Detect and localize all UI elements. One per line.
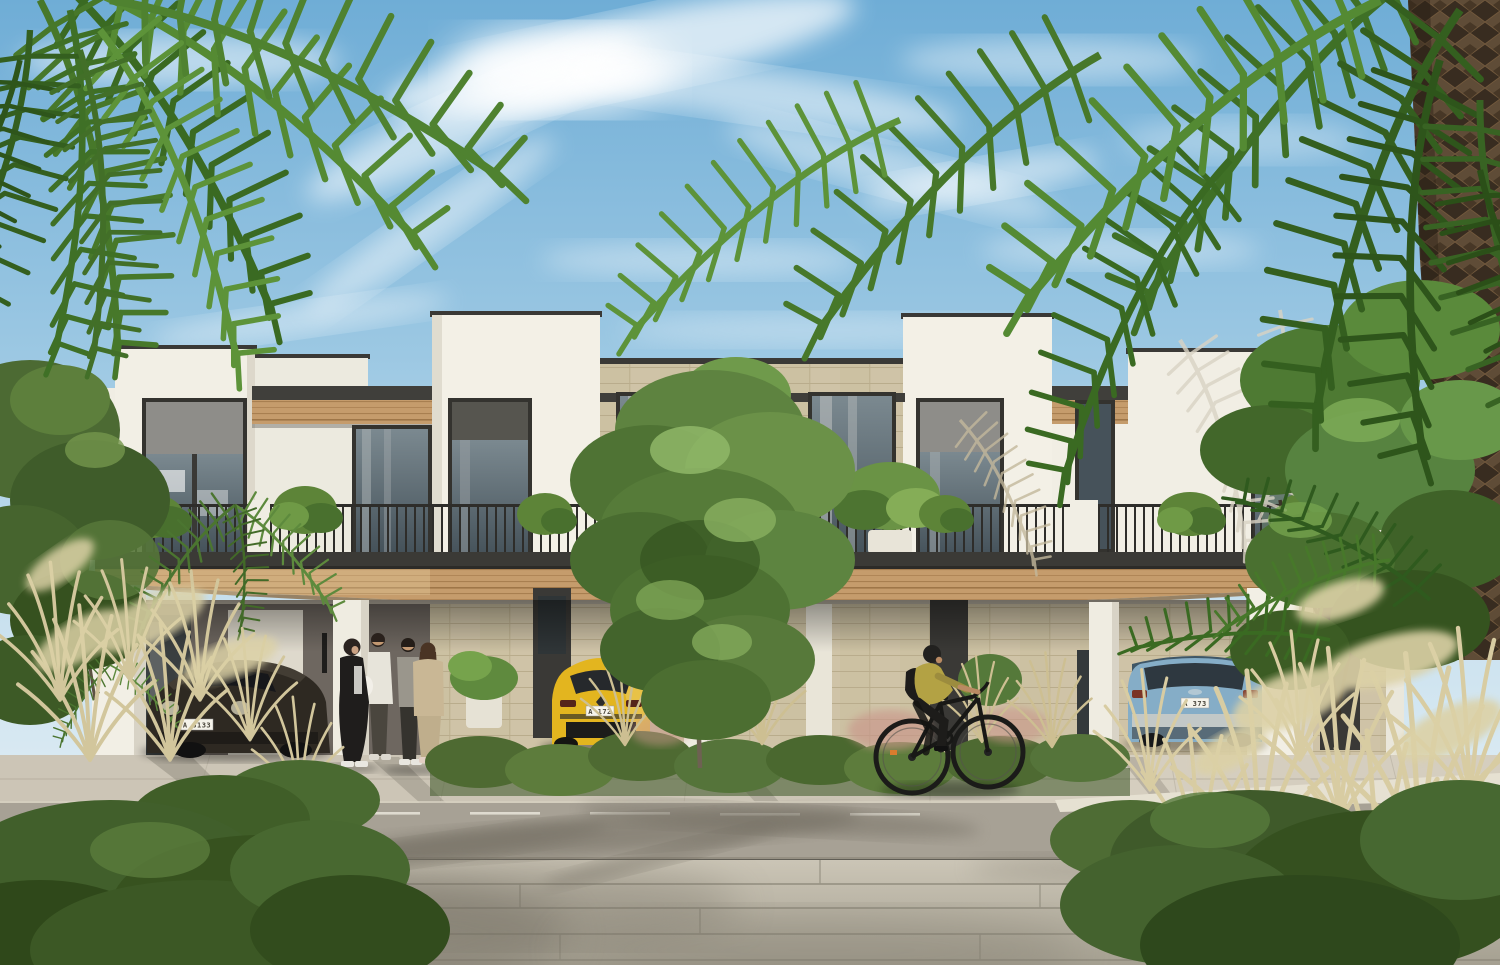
kia-badge (1188, 689, 1202, 695)
wheel-reflector (890, 750, 897, 755)
architectural-rendering: A 8133 A 172 A 373 (0, 0, 1500, 965)
scene-canvas: A 8133 A 172 A 373 (0, 0, 1500, 965)
taillight (560, 700, 576, 707)
